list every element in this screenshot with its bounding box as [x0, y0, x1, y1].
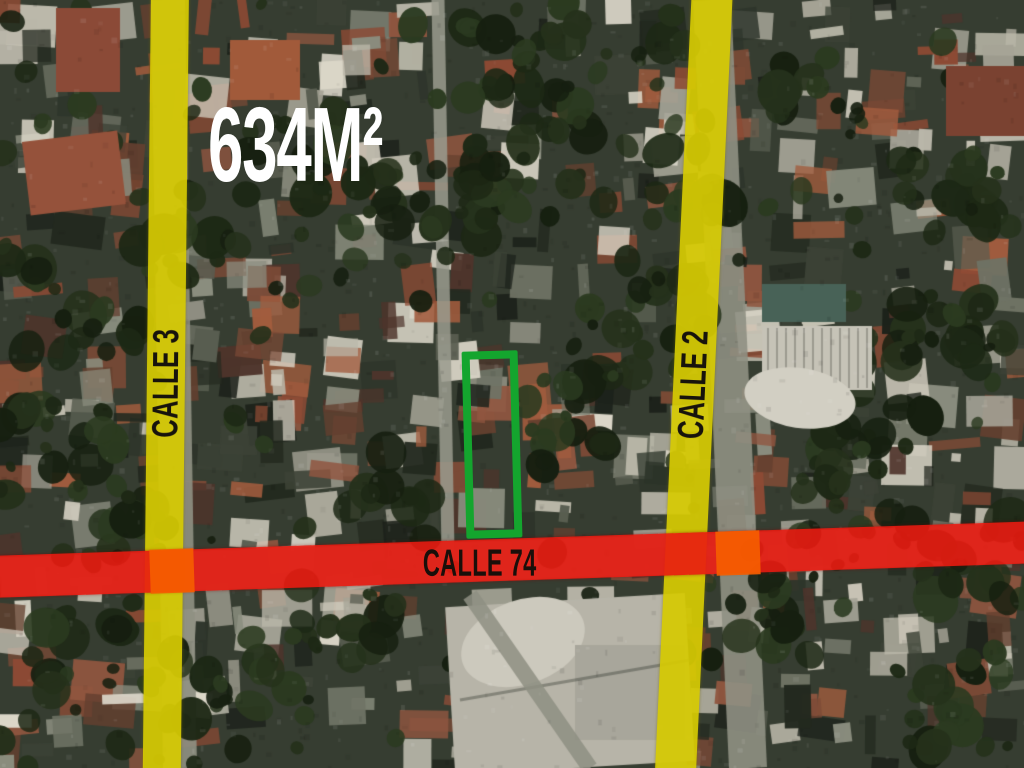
street-label-calle-3: CALLE 3	[144, 328, 187, 437]
street-intersection-calle2-calle74	[715, 530, 760, 575]
street-intersection-calle3-calle74	[149, 548, 194, 593]
satellite-map: CALLE 3 CALLE 2 CALLE 74 634M²	[0, 0, 1024, 768]
street-label-calle-2: CALLE 2	[670, 329, 717, 440]
property-lot-outline	[462, 350, 523, 538]
street-label-calle-74: CALLE 74	[423, 543, 537, 586]
lot-area-label: 634M²	[208, 92, 382, 198]
